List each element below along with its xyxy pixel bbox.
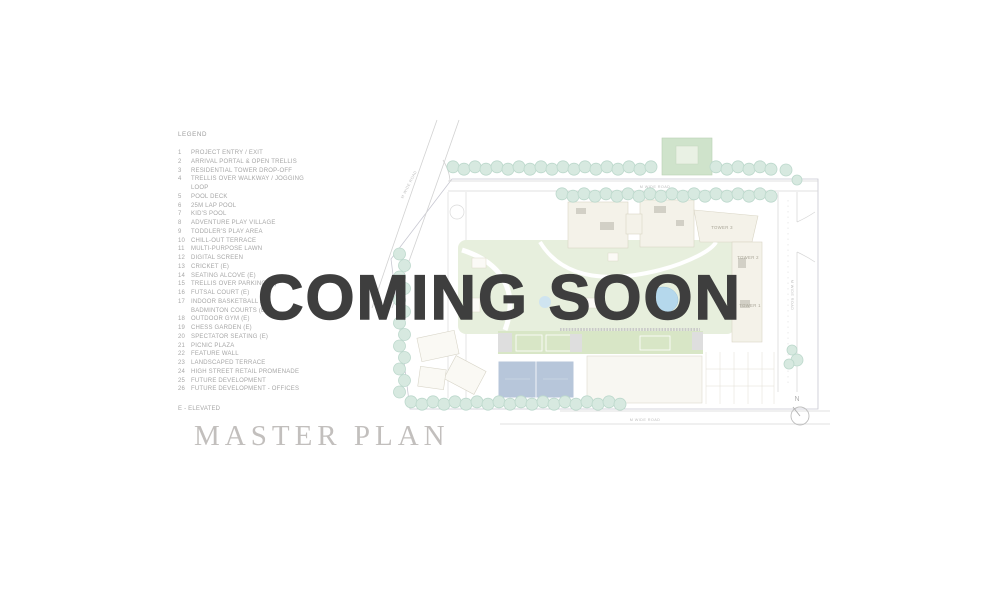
tree-icon — [502, 163, 514, 175]
tree-icon — [644, 188, 656, 200]
tree-icon — [480, 163, 492, 175]
master-plan-title: MASTER PLAN — [194, 420, 450, 453]
tree-icon — [765, 163, 777, 175]
tree-icon — [460, 398, 472, 410]
tree-icon — [394, 363, 406, 375]
legend-item-number: 6 — [178, 202, 191, 211]
legend-item: 2ARRIVAL PORTAL & OPEN TRELLIS — [178, 158, 338, 167]
indoor-courts — [498, 361, 574, 398]
legend-item-number: 9 — [178, 228, 191, 237]
tree-icon — [524, 163, 536, 175]
tree-icon — [581, 396, 593, 408]
legend-item-number: 12 — [178, 254, 191, 263]
tower-3-label: TOWER 3 — [711, 225, 733, 230]
offices-block — [587, 356, 702, 403]
legend-item: 20SPECTATOR SEATING (E) — [178, 333, 338, 342]
tree-icon — [471, 396, 483, 408]
legend-item: 7KID'S POOL — [178, 210, 338, 219]
tree-icon — [784, 359, 794, 369]
legend-item: 26FUTURE DEVELOPMENT - OFFICES — [178, 385, 338, 394]
tree-icon — [600, 188, 612, 200]
tree-icon — [482, 398, 494, 410]
tree-icon — [589, 190, 601, 202]
legend-item: 9TODDLER'S PLAY AREA — [178, 228, 338, 237]
tree-icon — [754, 188, 766, 200]
legend-item: 11MULTI-PURPOSE LAWN — [178, 245, 338, 254]
tree-icon — [438, 398, 450, 410]
legend-item-label: PROJECT ENTRY / EXIT — [191, 149, 263, 158]
legend-item-label: HIGH STREET RETAIL PROMENADE — [191, 368, 299, 377]
legend-item: 4TRELLIS OVER WALKWAY / JOGGING LOOP — [178, 175, 338, 193]
legend-item-label: CHILL-OUT TERRACE — [191, 237, 256, 246]
tree-icon — [493, 396, 505, 408]
legend-item-label: ADVENTURE PLAY VILLAGE — [191, 219, 276, 228]
legend-item-label: MULTI-PURPOSE LAWN — [191, 245, 262, 254]
tree-icon — [394, 340, 406, 352]
tree-icon — [754, 161, 766, 173]
legend-item: 3RESIDENTIAL TOWER DROP-OFF — [178, 167, 338, 176]
tree-icon — [721, 190, 733, 202]
tree-icon — [469, 161, 481, 173]
tree-icon — [491, 161, 503, 173]
tree-icon — [743, 163, 755, 175]
tree-icon — [526, 398, 538, 410]
legend-item-number: 21 — [178, 342, 191, 351]
tree-icon — [590, 163, 602, 175]
tree-icon — [721, 163, 733, 175]
legend-item-number: 26 — [178, 385, 191, 394]
legend-item-label: KID'S POOL — [191, 210, 227, 219]
tree-icon — [458, 163, 470, 175]
tree-icon — [710, 188, 722, 200]
legend-item-label: 25M LAP POOL — [191, 202, 236, 211]
tree-icon — [633, 190, 645, 202]
tree-icon — [688, 188, 700, 200]
legend-item-label: LANDSCAPED TERRACE — [191, 359, 266, 368]
tree-icon — [699, 190, 711, 202]
tree-icon — [792, 175, 802, 185]
clubhouse-buildings — [417, 330, 486, 394]
tree-icon — [447, 161, 459, 173]
coming-soon-text: COMING SOON — [0, 264, 1000, 332]
legend-item-number: 22 — [178, 350, 191, 359]
tree-icon — [535, 161, 547, 173]
tree-icon — [394, 386, 406, 398]
tree-icon — [710, 161, 722, 173]
tree-icon — [416, 398, 428, 410]
arrival-portal — [662, 138, 712, 175]
north-label: N — [794, 396, 799, 403]
legend-item-number: 2 — [178, 158, 191, 167]
tree-icon — [568, 163, 580, 175]
legend-item-label: POOL DECK — [191, 193, 228, 202]
tree-icon — [612, 163, 624, 175]
tree-icon — [732, 161, 744, 173]
legend-item: 5POOL DECK — [178, 193, 338, 202]
retail-promenade-grid — [706, 352, 774, 404]
tree-icon — [556, 188, 568, 200]
legend-item-number: 25 — [178, 377, 191, 386]
page: LEGEND 1PROJECT ENTRY / EXIT2ARRIVAL POR… — [0, 0, 1000, 600]
tree-icon — [780, 164, 792, 176]
tree-icon — [537, 396, 549, 408]
legend-item-number: 10 — [178, 237, 191, 246]
tree-icon — [449, 396, 461, 408]
diagonal-road-label: M WIDE ROAD — [400, 170, 417, 199]
tree-icon — [732, 188, 744, 200]
tree-icon — [399, 352, 411, 364]
tree-icon — [578, 188, 590, 200]
legend-item: 24HIGH STREET RETAIL PROMENADE — [178, 368, 338, 377]
tree-icon — [570, 398, 582, 410]
legend-item-label: PICNIC PLAZA — [191, 342, 234, 351]
legend-heading: LEGEND — [178, 131, 338, 138]
tree-icon — [592, 398, 604, 410]
tree-icon — [623, 161, 635, 173]
tree-icon — [645, 161, 657, 173]
legend-item-label: FEATURE WALL — [191, 350, 239, 359]
tree-icon — [579, 161, 591, 173]
legend-item-label: FUTURE DEVELOPMENT — [191, 377, 266, 386]
tree-icon — [601, 161, 613, 173]
tree-icon — [557, 161, 569, 173]
tree-icon — [634, 163, 646, 175]
tree-icon — [427, 396, 439, 408]
tree-icon — [399, 375, 411, 387]
legend-item-number: 20 — [178, 333, 191, 342]
tree-icon — [655, 190, 667, 202]
tower-2-label: TOWER 2 — [737, 255, 759, 260]
legend-item-number: 5 — [178, 193, 191, 202]
legend-item-number: 8 — [178, 219, 191, 228]
tree-icon — [546, 163, 558, 175]
tree-icon — [513, 161, 525, 173]
tree-icon — [743, 190, 755, 202]
legend-item: 23LANDSCAPED TERRACE — [178, 359, 338, 368]
tree-icon — [614, 398, 626, 410]
legend-item: 1PROJECT ENTRY / EXIT — [178, 149, 338, 158]
legend-item-label: ARRIVAL PORTAL & OPEN TRELLIS — [191, 158, 297, 167]
legend-item: 25FUTURE DEVELOPMENT — [178, 377, 338, 386]
legend-item-label: FUTURE DEVELOPMENT - OFFICES — [191, 385, 299, 394]
legend-item-number: 4 — [178, 175, 191, 193]
legend-item: 8ADVENTURE PLAY VILLAGE — [178, 219, 338, 228]
legend-item: 10CHILL-OUT TERRACE — [178, 237, 338, 246]
legend-item-number: 11 — [178, 245, 191, 254]
legend-item-label: RESIDENTIAL TOWER DROP-OFF — [191, 167, 292, 176]
tree-icon — [504, 398, 516, 410]
legend-item: 12DIGITAL SCREEN — [178, 254, 338, 263]
bottom-road-label: M WIDE ROAD — [630, 418, 661, 422]
tree-icon — [405, 396, 417, 408]
legend-item: 22FEATURE WALL — [178, 350, 338, 359]
tree-icon — [548, 398, 560, 410]
legend-item-label: TRELLIS OVER WALKWAY / JOGGING LOOP — [191, 175, 323, 193]
bottom-road — [500, 411, 830, 424]
legend-item-number: 23 — [178, 359, 191, 368]
legend-note-elevated: E - ELEVATED — [178, 406, 338, 412]
north-arrow: N — [791, 396, 809, 425]
tree-icon — [559, 396, 571, 408]
legend-item-number: 3 — [178, 167, 191, 176]
tree-icon — [622, 188, 634, 200]
legend-item-label: TODDLER'S PLAY AREA — [191, 228, 263, 237]
legend-item: 625M LAP POOL — [178, 202, 338, 211]
tree-icon — [394, 248, 406, 260]
tree-icon — [567, 190, 579, 202]
tree-icon — [611, 190, 623, 202]
legend-item: 21PICNIC PLAZA — [178, 342, 338, 351]
legend-item-label: DIGITAL SCREEN — [191, 254, 243, 263]
tree-icon — [603, 396, 615, 408]
legend-item-number: 24 — [178, 368, 191, 377]
top-road-label: M WIDE ROAD — [640, 185, 671, 189]
legend-item-label: SPECTATOR SEATING (E) — [191, 333, 268, 342]
tree-icon — [677, 190, 689, 202]
legend-item-number: 1 — [178, 149, 191, 158]
tree-icon — [515, 396, 527, 408]
legend-item-number: 7 — [178, 210, 191, 219]
tree-icon — [765, 190, 777, 202]
tree-icon — [787, 345, 797, 355]
sports-lawn-band — [498, 331, 703, 354]
tree-icon — [666, 188, 678, 200]
